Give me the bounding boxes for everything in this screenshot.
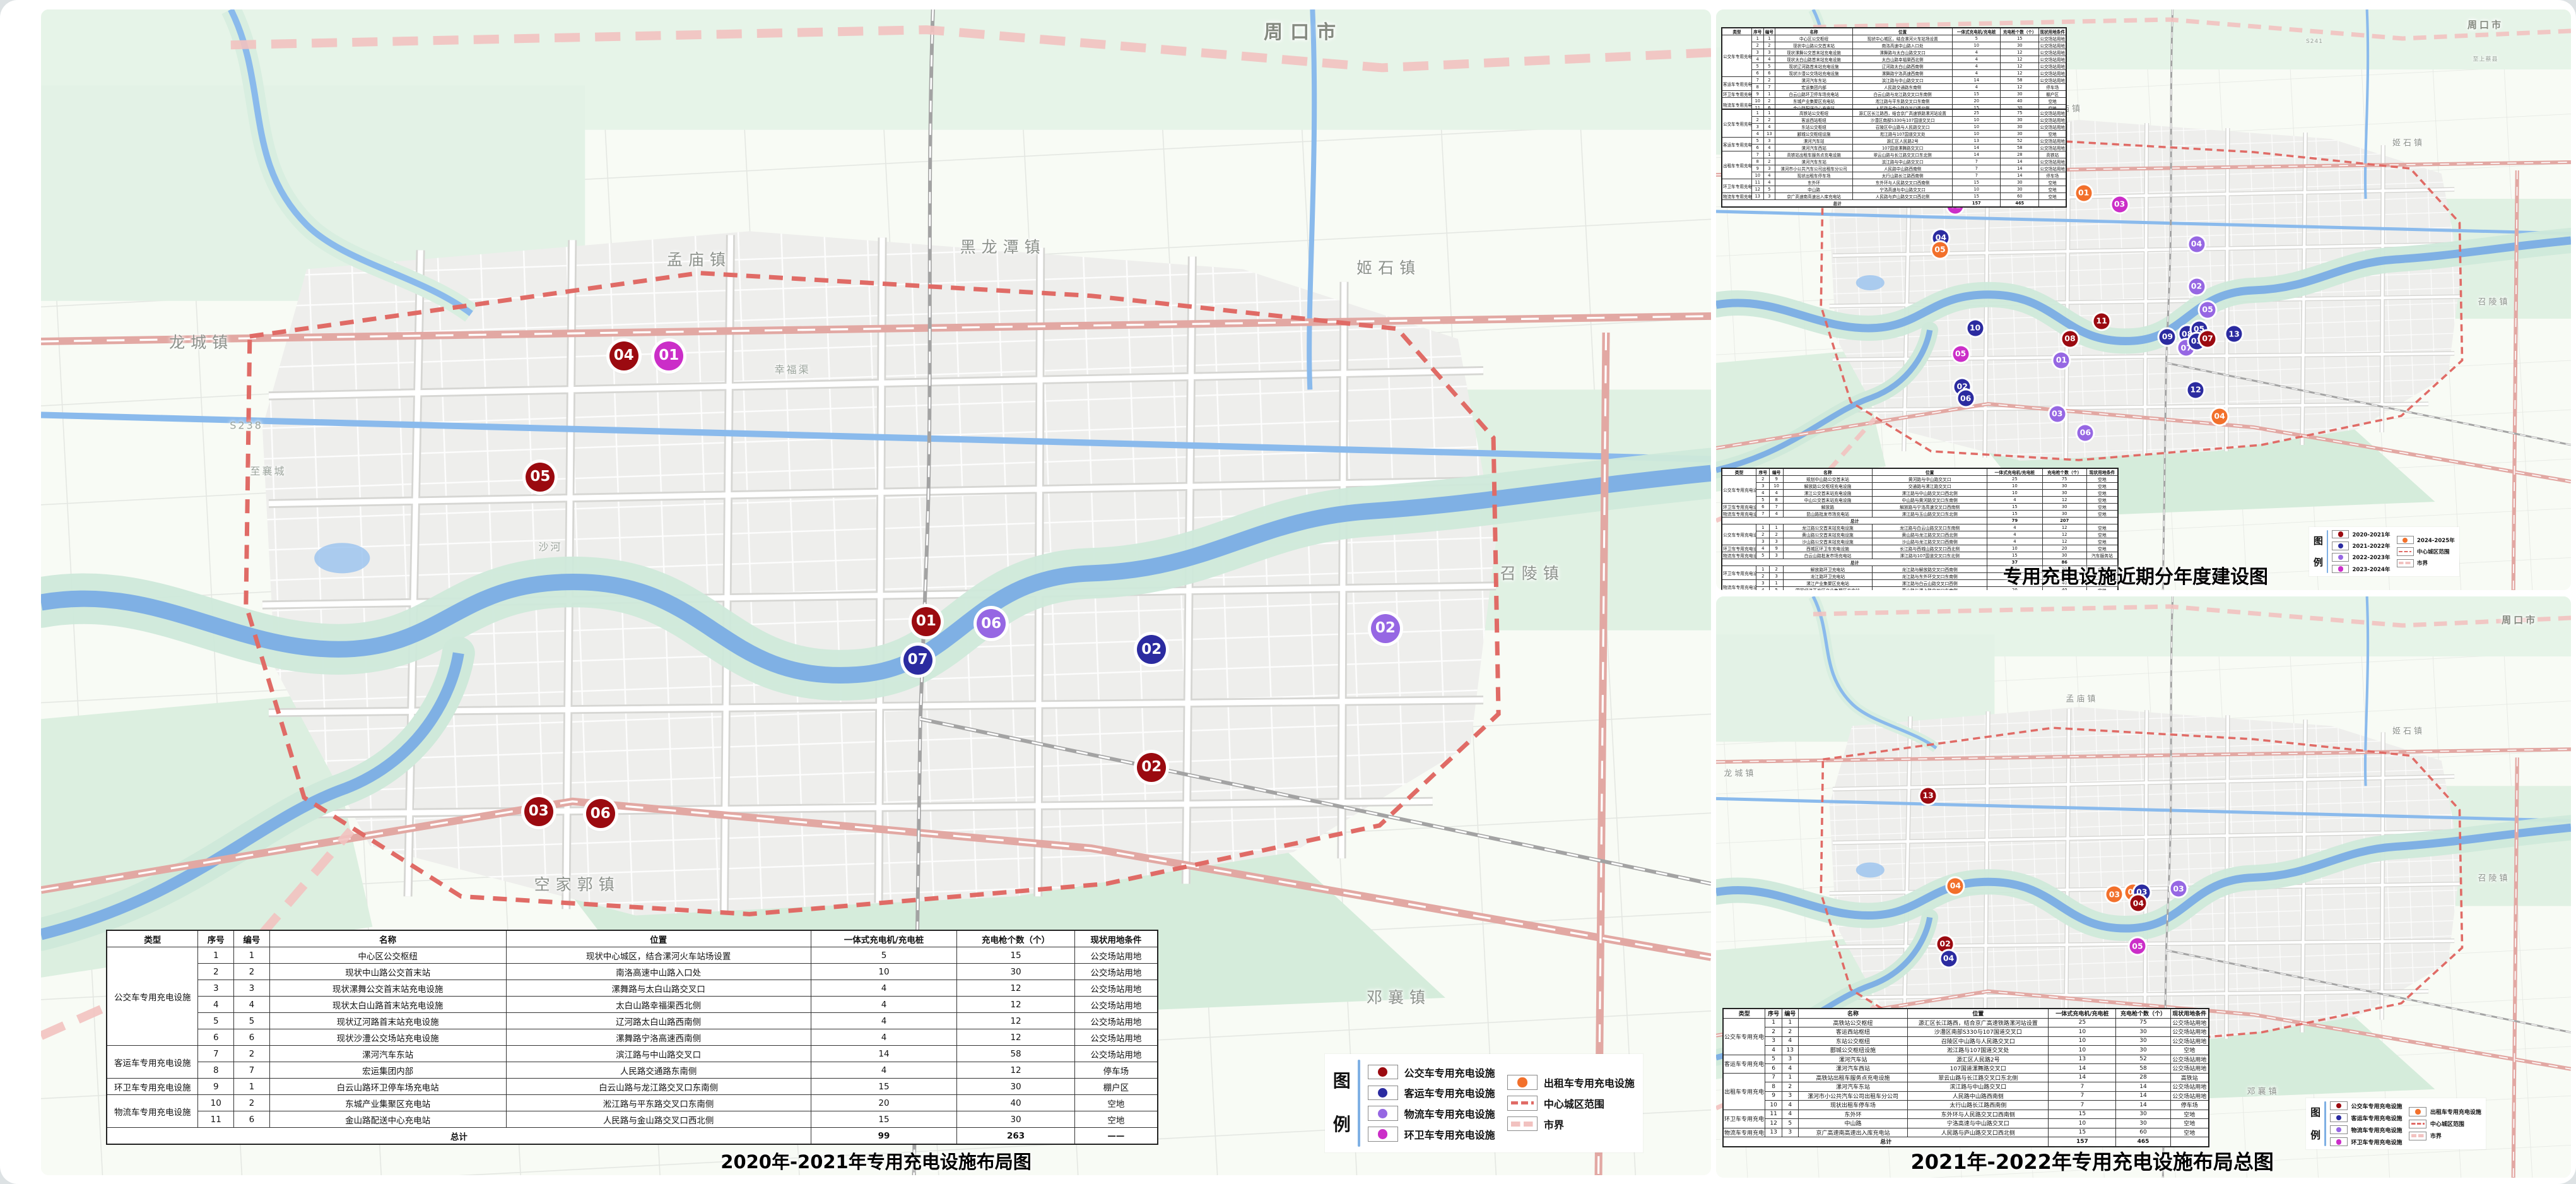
cell: 白云山路环卫停车场充电站 [269,1079,506,1095]
cell: 30 [2042,490,2086,497]
table-row: 公交车专用充电设施11中心区公交枢纽现状中心城区，结合漯河火车站场设置515公交… [1722,35,2066,42]
type-cell: 物流车专用充电设施 [1722,552,1756,559]
legend-label: 中心城区范围 [1544,1096,1604,1111]
legend-label: 客运车专用充电设施 [2351,1114,2403,1122]
cell: 高铁站 [2170,1073,2209,1082]
cell: 淞江路与107国道交叉处 [1908,1046,2049,1055]
cell: 现状太白山路首末站充电设施 [1775,56,1853,63]
cell: 4 [1782,1101,1798,1110]
type-cell: 环卫车专用充电设施 [1722,179,1752,193]
type-cell: 环卫车专用充电设施 [107,1079,198,1095]
cell: 淞江路与107国道交叉处 [1852,131,1952,138]
cell: 15 [2049,1128,2116,1137]
cell: 12 [2001,56,2039,63]
cell: 4 [1953,63,2001,70]
legend-item: 2024-2025年 [2397,536,2455,545]
table-row: 出租车专用充电设施71高铁站出租车服务点充电设施翠云山路与长江路交叉口东北侧14… [1723,1073,2209,1082]
cell: 空地 [2086,511,2118,518]
total-value: 207 [2042,518,2086,524]
cell: 空地 [2170,1128,2209,1137]
table-row: 公交车专用充电设施11高铁站公交枢纽源汇区长江路西，结合京广高速铁路漯河站设置2… [1722,109,2066,117]
cell: 现状漯舞公交首末站充电设施 [1775,49,1853,56]
cell: 空地 [2039,98,2066,105]
cell: 4 [1953,70,2001,77]
cell: 1 [1770,580,1783,587]
cell: 公交场站用地 [2039,117,2066,124]
legend-divider [2324,1101,2326,1146]
cell: 4 [1763,124,1775,131]
cell: 现状中心城区，结合漯河火车站场设置 [506,947,811,964]
cell: 10 [1987,545,2042,552]
cell: 75 [2042,476,2086,483]
cell: 现状中心城区，结合漯河火车站场设置 [1852,35,1952,42]
cell: 2 [1763,117,1775,124]
cell: 公交场站用地 [2170,1018,2209,1027]
cell: 昆山路批发市场充电站 [1783,511,1872,518]
legend-item: 环卫车专用充电设施 [1368,1127,1495,1142]
cell: 黄山路公交首末站充电设施 [1783,531,1872,538]
cell: 5 [1763,186,1775,193]
cell: 高铁站公交枢纽 [1775,109,1853,117]
legend-facility: 图例公交车专用充电设施客运车专用充电设施物流车专用充电设施环卫车专用充电设施出租… [2306,1098,2486,1149]
cell: 公交场站用地 [2170,1027,2209,1037]
legend-label: 物流车专用充电设施 [1404,1106,1495,1121]
cell: 公交场站用地 [2039,77,2066,84]
cell: 公交场站用地 [2170,1091,2209,1101]
cityline-line-icon [2397,559,2414,568]
table-row: 22客运西站枢纽沙澧区南部S330与107国道交叉口1030公交场站用地 [1723,1027,2209,1037]
cell: 客运西站枢纽 [1798,1027,1907,1037]
cityline-line-icon [2409,1132,2426,1140]
boundary-line-icon [1507,1096,1538,1111]
table-row: 34东站公交枢纽召陵区中山路与人民路交叉口1030公交场站用地 [1722,124,2066,131]
cell: 1 [234,1079,270,1095]
column-header: 现状用地条件 [2039,28,2066,35]
cell: 12 [2042,497,2086,504]
cell: 4 [1782,1064,1798,1074]
type-cell: 物流车专用充电设施 [1722,580,1756,591]
cell: 8 [1752,158,1764,165]
cell: 14 [811,1046,957,1062]
panel-title: 2021年-2022年专用充电设施布局总图 [1716,1146,2468,1175]
cell: 龙江路与解放路交叉口西南侧 [1873,566,1987,573]
cell: 2 [1770,566,1783,573]
cell: 白云山路环卫停车场充电站 [1775,91,1853,98]
cell: 龙江路与白云山路交叉口东南侧 [1873,524,1987,531]
cell: 公交场站用地 [1074,964,1158,980]
cell: 2 [1763,98,1775,105]
column-header: 现状用地条件 [1074,930,1158,947]
cell: 京广高速南高速出入库充电站 [1798,1128,1907,1137]
cell: 30 [2001,131,2039,138]
cell: 汽车服务站 [2086,552,2118,559]
column-header: 类型 [107,930,198,947]
cell: 太行山路长江路西南侧 [1908,1101,2049,1110]
cell: 东外环与人民路交叉口西南侧 [1908,1110,2049,1119]
cell: 15 [1987,552,2042,559]
cell: 空地 [2086,476,2118,483]
cell: 漯江产业集聚区充电站 [1783,580,1872,587]
cell: 召陵区中山路与人民路交叉口 [1908,1036,2049,1046]
table-row: 环卫车专用充电设施114东外环东外环与人民路交叉口西南侧1530空地 [1723,1110,2209,1119]
cell: 2 [1756,531,1770,538]
table-row: 310解放路公交枢纽充电设施交通路与漯江路交叉口1030空地 [1722,483,2118,490]
legend-item: 出租车专用充电设施 [1507,1075,1635,1090]
cell: 4 [198,997,234,1013]
cell: 中心区公交枢纽 [269,947,506,964]
table-row: 55现状辽河路首末站充电设施辽河路太白山路西南侧412公交场站用地 [1722,63,2066,70]
cell: 漯河市小公共汽车公司出租车分公司 [1798,1091,1907,1101]
total-value: 465 [2001,200,2039,208]
cell: 4 [1763,56,1775,63]
cell: 15 [2049,1110,2116,1119]
column-header: 位置 [1852,28,1952,35]
legend-label: 物流车专用充电设施 [2351,1126,2403,1134]
column-header: 名称 [1783,468,1872,476]
cell: 公交场站用地 [2039,35,2066,42]
sanitation-dot-icon [2330,1137,2348,1146]
legend-label: 公交车专用充电设施 [1404,1065,1495,1080]
column-header: 充电枪个数（个） [2001,28,2039,35]
cell: 6 [1752,145,1764,151]
column-header: 一体式充电机/充电桩 [811,930,957,947]
cell: 空地 [2086,483,2118,490]
cell: 7 [1752,77,1764,84]
cell: 人民路中山路西南侧 [1852,165,1952,172]
type-cell: 出租车专用充电设施 [1723,1073,1765,1110]
cell: 4 [1953,56,2001,63]
cell: 30 [2116,1036,2170,1046]
cell: 1 [1756,566,1770,573]
column-header: 编号 [234,930,270,947]
type-cell: 物流车专用充电设施 [1722,193,1752,200]
cell: 翠云山路与长江路交叉口东北侧 [1852,151,1952,158]
cell: 2 [1763,42,1775,49]
cell: 6 [234,1029,270,1046]
cell: 漯舞路宁洛高速西南侧 [506,1029,811,1046]
legend-label: 2020-2021年 [2352,531,2390,538]
cell: 漯江路与玉山路交叉口东北侧 [1873,511,1987,518]
cell: 停车场 [2039,172,2066,179]
cell: 11 [198,1111,234,1128]
legend-label: 2023-2024年 [2352,565,2390,573]
cell: 南洛高速中山路入口处 [1852,42,1952,49]
cell: 宏运集团内部 [1775,84,1853,91]
type-cell: 出租车专用充电设施 [1722,151,1752,179]
header-row: 类型序号编号名称位置一体式充电机/充电桩充电枪个数（个）现状用地条件 [107,930,1158,947]
cell: 滨江路与中山路交叉口 [1852,77,1952,84]
cell: 15 [811,1111,957,1128]
table-row: 64漯河汽车西站107国道漯舞路交叉口1458公交场站用地 [1722,145,2066,151]
column-header: 充电枪个数（个） [2116,1009,2170,1018]
cell: 沙澧区南部S330与107国道交叉口 [1908,1027,2049,1037]
table-row: 66现状沙澧公交场站充电设施漯舞路宁洛高速西南侧412公交场站用地 [1722,70,2066,77]
cell: 2 [1765,1027,1782,1037]
legend-item: 物流车专用充电设施 [2330,1125,2403,1134]
cell: 东城产业集聚区充电站 [269,1095,506,1111]
cell: 12 [1752,186,1764,193]
cell: 漯河汽车西站 [1798,1064,1907,1074]
cell: 漯江路与107国道交叉口东北侧 [1873,552,1987,559]
cell: 漯江公交首末站充电设施 [1783,490,1872,497]
table-row: 22现状中山路公交首末站南洛高速中山路入口处1030公交场站用地 [107,964,1158,980]
total-label: 总计 [1723,1137,2049,1147]
legend-item: 公交车专用充电设施 [1368,1065,1495,1080]
legend-label: 出租车专用充电设施 [2430,1108,2481,1116]
cell: 3 [1782,1091,1798,1101]
cell: 15 [1953,91,2001,98]
cell: 12 [2042,524,2086,531]
cell: 3 [1756,580,1770,587]
cell: 7 [2049,1101,2116,1110]
table-row: 环卫车专用充电设施67解放路解放路与宁洛高速交叉口西南侧1530空地 [1722,504,2118,511]
cell: 2 [1752,42,1764,49]
table-row: 116金山路配送中心充电站人民路与金山路交叉口西北侧1530空地 [107,1111,1158,1128]
total-label: 总计 [1722,559,1987,566]
table-row: 公交车专用充电设施29规划中山路公交首末站黄河路与中山路交叉口2575空地 [1722,476,2118,483]
cell: 4 [1770,490,1783,497]
legend-item: 中心城区范围 [2409,1120,2481,1128]
cell: 30 [2042,504,2086,511]
cell: 1 [1763,109,1775,117]
cell: 源汇区长江路西，结合京广高速铁路漯河站设置 [1852,109,1952,117]
total-value: —— [1074,1128,1158,1145]
bus-dot-icon [2330,1101,2348,1110]
column-header: 序号 [1756,468,1770,476]
cell: 空地 [2039,131,2066,138]
cell: 源汇区长江路西，结合京广高速铁路漯河站设置 [1908,1018,2049,1027]
cell: 10 [1752,172,1764,179]
legend-item: 市界 [1507,1116,1635,1132]
column-header: 位置 [1873,468,1987,476]
type-cell: 公交车专用充电设施 [1722,109,1752,138]
cell: 1 [1765,1018,1782,1027]
total-row: 总计157465 [1722,200,2066,208]
cell: 人民路交通路东南侧 [1852,84,1952,91]
table-row: 413郾城公交枢纽设施淞江路与107国道交叉处1030空地 [1722,131,2066,138]
legend-label: 2024-2025年 [2417,536,2455,544]
table-row: 客运车专用充电设施53漯河汽车站源汇区人民路2号1352公交场站用地 [1722,138,2066,145]
cell: 沙山路公交首末站充电设施 [1783,538,1872,545]
legend-label: 2021-2022年 [2352,542,2390,550]
header-row: 类型序号编号名称位置一体式充电机/充电桩充电枪个数（个）现状用地条件 [1722,468,2118,476]
cell: 宁洛高速与中山路交叉口 [1852,186,1952,193]
sanitation-dot-icon [2332,565,2349,574]
cell: 公交场站用地 [2170,1082,2209,1092]
cell: 源汇区人民路2号 [1852,138,1952,145]
cell: 15 [1953,179,2001,186]
legend-label: 出租车专用充电设施 [1544,1075,1635,1090]
cell: 30 [2042,483,2086,490]
cell: 7 [1953,158,2001,165]
cell: 公交场站用地 [2039,138,2066,145]
total-value [2086,518,2118,524]
cell: 龙江路与东外环交叉口东南侧 [1873,573,1987,580]
cell: 10 [1953,124,2001,131]
legend-item: 2020-2021年 [2332,530,2390,539]
table-row: 104现状出租车停车场太行山路长江路西南侧714停车场 [1723,1101,2209,1110]
cell: 现状辽河路首末站充电设施 [1775,63,1853,70]
column-header: 位置 [506,930,811,947]
column-header: 类型 [1722,28,1752,35]
cell: 公交场站用地 [2039,56,2066,63]
total-value: 157 [2049,1137,2116,1147]
column-header: 一体式充电机/充电桩 [2049,1009,2116,1018]
cell: 1 [198,947,234,964]
legend-label: 公交车专用充电设施 [2351,1102,2403,1110]
cell: 52 [2001,138,2039,145]
type-cell: 公交车专用充电设施 [1722,524,1756,545]
type-cell: 客运车专用充电设施 [1723,1055,1765,1073]
cell: 3 [1765,1036,1782,1046]
cell: 12 [957,980,1075,997]
cell: 空地 [2170,1110,2209,1119]
cell: 东外环与人民路交叉口西南侧 [1852,179,1952,186]
cell: 12 [957,1062,1075,1079]
table-row: 客运车专用充电设施72漯河汽车东站滨江路与中山路交叉口1458公交场站用地 [107,1046,1158,1062]
cell: 15 [1987,504,2042,511]
cell: 12 [1765,1119,1782,1128]
sanitation-dot-icon [1368,1127,1398,1142]
cell: 7 [198,1046,234,1062]
type-cell: 公交车专用充电设施 [1722,476,1756,504]
total-value [2039,200,2066,208]
type-cell: 物流车专用充电设施 [1723,1128,1765,1137]
cell: 中山公交首末站充电设施 [1783,497,1872,504]
cell: 4 [1987,531,2042,538]
cell: 60 [2001,193,2039,200]
cell: 4 [1782,1036,1798,1046]
cell: 公交场站用地 [2170,1036,2209,1046]
cell: 4 [811,997,957,1013]
cell: 5 [1756,497,1770,504]
total-label: 总计 [1722,518,1987,524]
cell: 12 [957,1029,1075,1046]
legend-divider [1358,1060,1360,1147]
cell: 龙江路环卫充电站 [1783,573,1872,580]
cell: 现状辽河路首末站充电设施 [269,1013,506,1029]
cell: 公交场站用地 [2039,63,2066,70]
cell: 人民路中山路西南侧 [1908,1091,2049,1101]
cell: 4 [1987,524,2042,531]
cell: 6 [198,1029,234,1046]
cell: 12 [957,1013,1075,1029]
cell: 14 [1953,77,2001,84]
table-row: 环卫车专用充电设施91白云山路环卫停车场充电站白云山路与龙江路交叉口东南侧153… [1722,91,2066,98]
legend-title: 图例 [1333,1060,1351,1147]
column-header: 序号 [198,930,234,947]
cell: 1 [1782,1073,1798,1082]
cell: 15 [2001,35,2039,42]
cell: 30 [2116,1119,2170,1128]
cell: 4 [1752,56,1764,63]
cell: 宁洛高速与中山路交叉口 [1908,1119,2049,1128]
table-row: 环卫车专用充电设施91白云山路环卫停车场充电站白云山路与龙江路交叉口东南侧153… [107,1079,1158,1095]
cell: 太白山路幸福渠西北侧 [506,997,811,1013]
column-header: 位置 [1908,1009,2049,1018]
cell: 4 [234,997,270,1013]
cell: 3 [1756,538,1770,545]
table-row: 93漯河市小公共汽车公司出租车分公司人民路中山路西南侧714公交场站用地 [1723,1091,2209,1101]
cell: 现状沙澧公交场站充电设施 [269,1029,506,1046]
total-value: 99 [811,1128,957,1145]
cell: 30 [2116,1046,2170,1055]
cell: 11 [1752,179,1764,186]
cell: 1 [1752,35,1764,42]
cell: 10 [1953,186,2001,193]
cell: 13 [1752,193,1764,200]
passenger-dot-icon [2332,542,2349,550]
cell: 高铁站 [2039,151,2066,158]
cell: 白云山路与龙江路交叉口东南侧 [1852,91,1952,98]
cell: 2 [1782,1027,1798,1037]
cell: 空地 [2086,497,2118,504]
boundary-line-icon [2397,547,2414,556]
cell: 东外环 [1798,1110,1907,1119]
cell: 13 [1782,1046,1798,1055]
cell: 14 [2049,1064,2116,1074]
cell: 2 [234,1046,270,1062]
cell: 公交场站用地 [1074,947,1158,964]
table-row: 44现状太白山路首末站充电设施太白山路幸福渠西北侧412公交场站用地 [107,997,1158,1013]
cell: 高铁站出租车服务点充电设施 [1798,1073,1907,1082]
cell: 4 [1763,179,1775,186]
cell: 2 [1763,77,1775,84]
taxi-dot-icon [2397,536,2414,545]
legend-facility: 图例公交车专用充电设施客运车专用充电设施物流车专用充电设施环卫车专用充电设施出租… [1325,1054,1643,1152]
cell: 4 [1756,587,1770,591]
cell: 4 [811,1013,957,1029]
cell: 9 [198,1079,234,1095]
cell: 5 [1756,552,1770,559]
cell: 30 [2001,91,2039,98]
cell: 空地 [1074,1095,1158,1111]
legend-label: 市界 [2417,559,2428,567]
cell: 15 [957,947,1075,964]
cell: 2 [1756,573,1770,580]
cell: 棚户区 [2039,91,2066,98]
cell: 棚户区 [1074,1079,1158,1095]
cell: 东站公交枢纽 [1775,124,1853,131]
cell: 5 [1763,63,1775,70]
cell: 太行山路长江路西南侧 [1852,172,1952,179]
cell: 人民路与庐山路交叉口西北侧 [1852,193,1952,200]
cell: 沙澧区南部S330与107国道交叉口 [1852,117,1952,124]
cell: 漯舞路与太白山路交叉口 [506,980,811,997]
cell: 13 [1763,131,1775,138]
cell: 4 [1756,490,1770,497]
cell: 现状中山路公交首末站 [1775,42,1853,49]
table-row: 82漯河汽车东站滨江路与中山路交叉口714公交场站用地 [1722,158,2066,165]
cell: 2 [1770,531,1783,538]
cell: 40 [957,1095,1075,1111]
cell: 15 [1953,193,2001,200]
cell: 3 [1782,1055,1798,1064]
cell: 10 [1987,490,2042,497]
total-row: 总计157465 [1723,1137,2209,1147]
legend-label: 环卫车专用充电设施 [1404,1127,1495,1142]
legend-item: 市界 [2397,559,2455,568]
cell: 东外环 [1775,179,1853,186]
cell: 6 [1765,1064,1782,1074]
legend-item: 客运车专用充电设施 [2330,1113,2403,1122]
cell: 中山路与黄河路交叉口东南侧 [1873,497,1987,504]
cell: 空地 [2086,538,2118,545]
cell: 30 [2001,117,2039,124]
cell: 燕山路与漯上路交叉口东南侧 [1873,587,1987,591]
cell: 公交场站用地 [2039,165,2066,172]
cell: 1 [1763,35,1775,42]
